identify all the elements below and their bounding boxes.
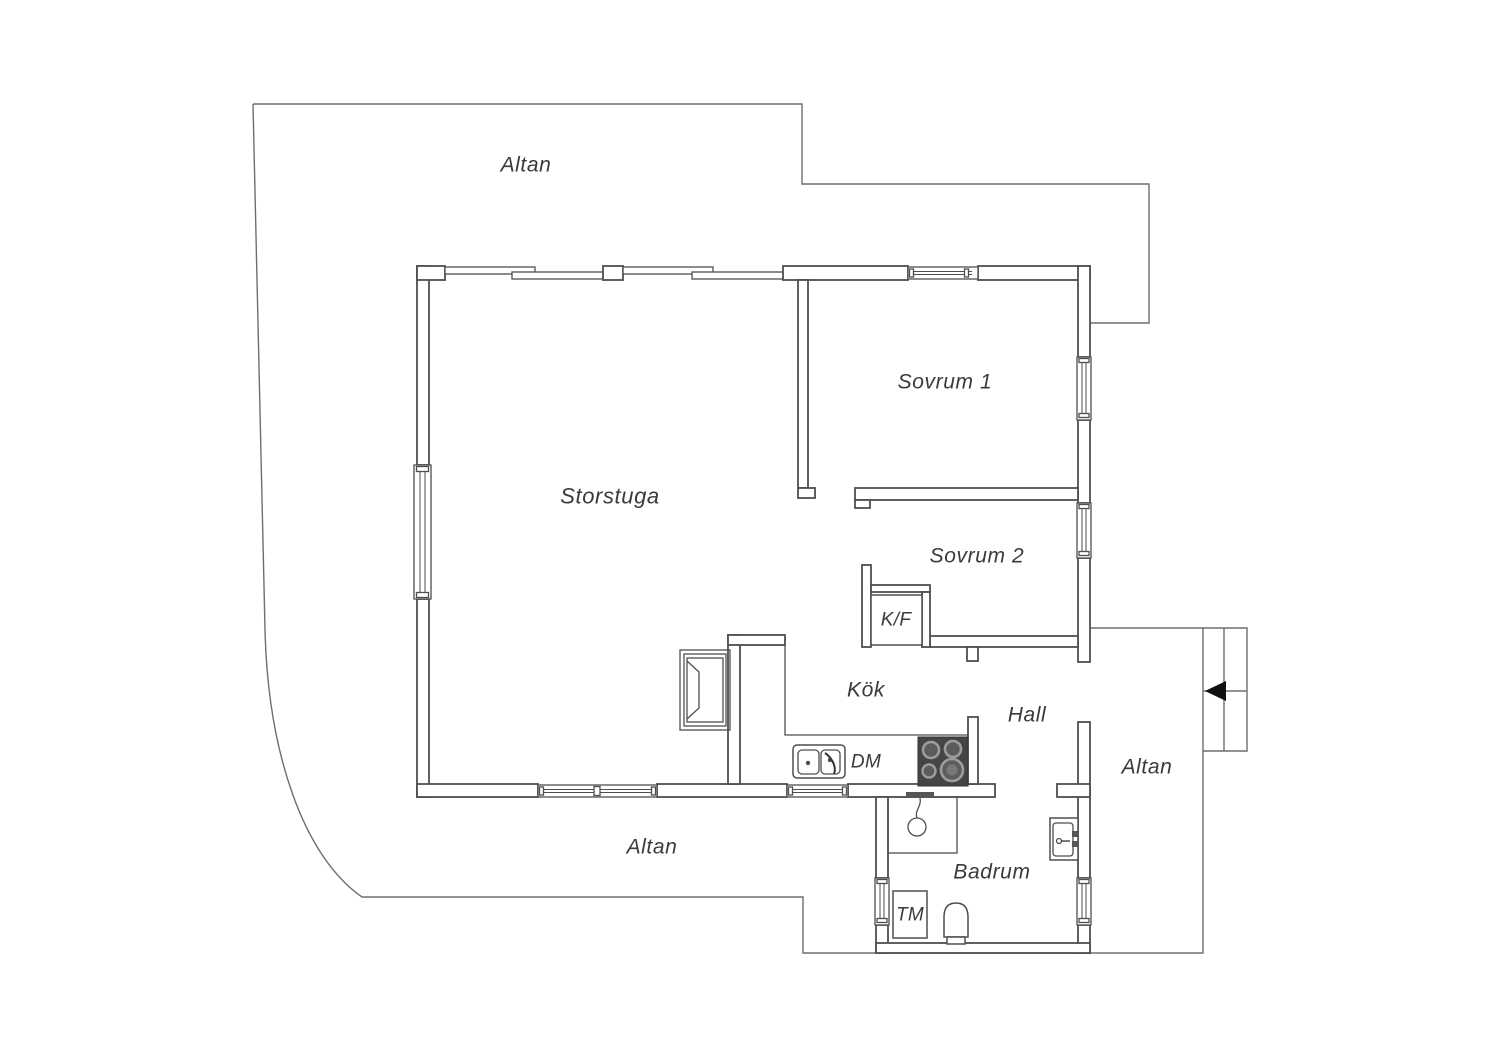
wall-segment	[603, 266, 623, 280]
deck-outline-top	[253, 104, 1149, 323]
appliance-label-fridge-freezer: K/F	[881, 610, 913, 631]
wall-segment	[978, 266, 1090, 280]
bathroom-sink-icon	[1050, 818, 1078, 860]
wall-segment	[417, 266, 429, 465]
room-label-terrace-top: Altan	[499, 154, 552, 177]
room-label-bathroom: Badrum	[953, 861, 1030, 884]
wall-segment	[1078, 266, 1090, 357]
walls	[417, 266, 1090, 953]
entry-steps	[1090, 628, 1247, 751]
window-bedroom2-east	[1077, 503, 1091, 558]
wall-segment	[1078, 722, 1090, 878]
window-bedroom1-north	[908, 267, 978, 279]
wall-segment	[798, 280, 808, 488]
room-label-terrace-right: Altan	[1120, 756, 1173, 779]
appliance-label-washing-machine: TM	[896, 905, 924, 926]
window-bedroom1-east	[1077, 357, 1091, 420]
room-label-terrace-bottom: Altan	[625, 836, 678, 859]
wall-segment	[417, 266, 445, 280]
wall-segment	[1078, 420, 1090, 503]
window-bathroom-east	[1077, 878, 1091, 925]
wall-segment	[798, 488, 815, 498]
wall-segment	[922, 592, 930, 647]
window-bathroom-west	[875, 878, 889, 925]
floorplan-canvas: Altan Storstuga Sovrum 1 Sovrum 2 K/F Kö…	[0, 0, 1500, 1060]
wall-segment	[855, 500, 870, 508]
shower-icon	[888, 792, 957, 853]
kitchen-sink-icon	[793, 745, 845, 778]
wall-segment	[876, 943, 1090, 953]
wall-segment	[783, 266, 908, 280]
window-livingroom-west	[414, 465, 431, 599]
wall-segment	[1057, 784, 1090, 797]
wall-segment	[930, 636, 1078, 647]
stove-icon	[918, 737, 968, 786]
floorplan-svg: Altan Storstuga Sovrum 1 Sovrum 2 K/F Kö…	[0, 0, 1500, 1060]
wall-segment	[968, 717, 978, 784]
wall-segment	[417, 599, 429, 797]
wall-segment	[855, 488, 1078, 500]
room-label-kitchen: Kök	[847, 679, 886, 702]
wall-segment	[1078, 558, 1090, 662]
wall-segment	[417, 784, 538, 797]
room-label-living-room: Storstuga	[560, 484, 660, 509]
wall-segment	[967, 647, 978, 661]
wall-segment	[657, 784, 787, 797]
fireplace-icon	[680, 650, 730, 730]
window-kitchen-south	[787, 785, 848, 797]
appliance-label-dishwasher: DM	[851, 752, 881, 773]
wall-segment	[862, 565, 871, 647]
sliding-door-panel	[512, 272, 605, 279]
room-label-bedroom-1: Sovrum 1	[898, 371, 993, 394]
window-livingroom-south	[538, 785, 657, 797]
windows	[414, 267, 1091, 925]
room-label-bedroom-2: Sovrum 2	[930, 545, 1025, 568]
toilet-icon	[944, 903, 968, 944]
wall-segment	[728, 635, 785, 645]
sliding-door-panel	[692, 272, 783, 279]
wall-segment	[871, 585, 930, 592]
room-label-hall: Hall	[1008, 704, 1047, 727]
wall-segment	[876, 797, 888, 878]
entrance-arrow-icon	[1205, 681, 1226, 701]
